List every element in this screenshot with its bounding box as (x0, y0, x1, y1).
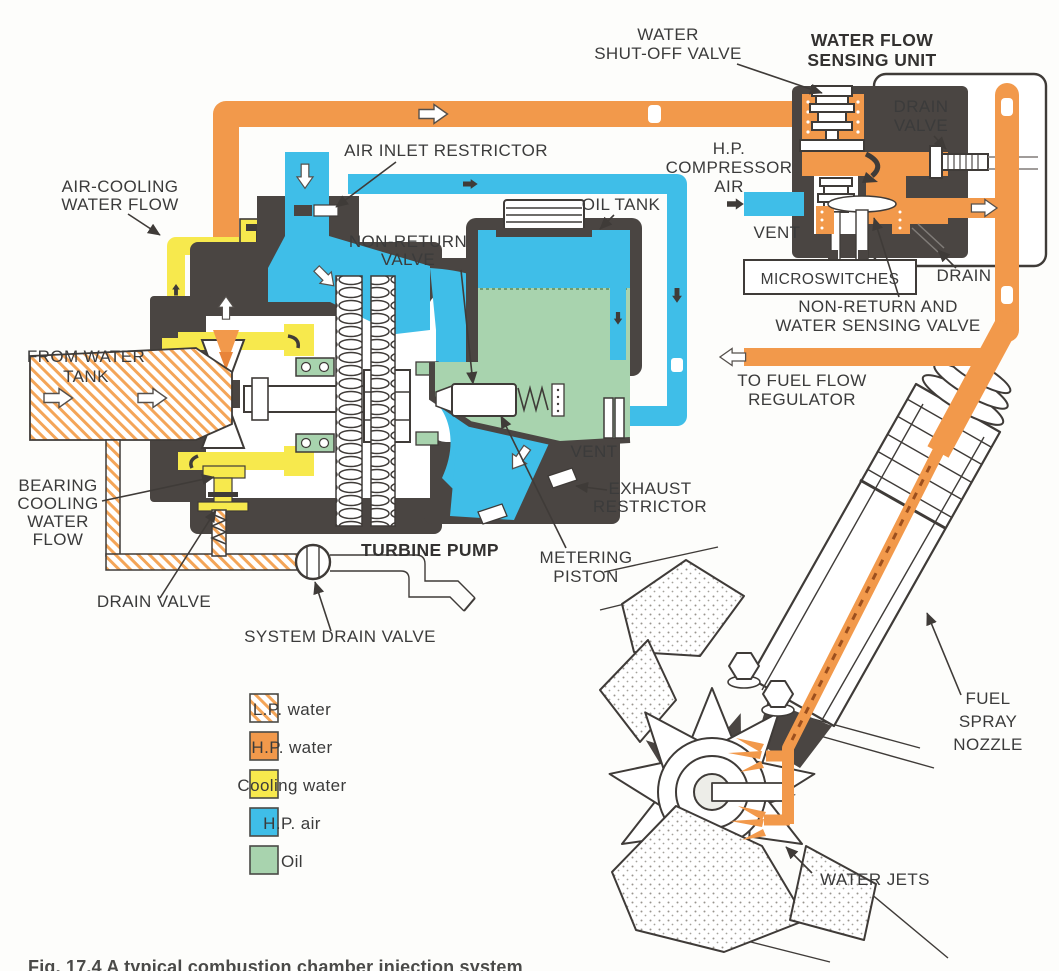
label-hp-compressor-air: COMPRESSOR (666, 158, 793, 177)
figure-caption: Fig. 17.4 A typical combustion chamber i… (28, 957, 523, 971)
label-water-shut-off-valve: SHUT-OFF VALVE (594, 44, 742, 63)
legend-item-oil: Oil (250, 846, 303, 874)
coil-stack-right (371, 276, 395, 526)
legend-label: Oil (281, 852, 303, 871)
label-vent-top: VENT (754, 223, 801, 242)
label-non-return-valve: NON-RETURN (349, 232, 467, 251)
legend-label: L.P. water (253, 700, 331, 719)
label-non-return-water-sensing-valve: WATER SENSING VALVE (775, 316, 980, 335)
label-air-inlet-restrictor: AIR INLET RESTRICTOR (344, 141, 548, 160)
label-hp-compressor-air: AIR (714, 177, 744, 196)
tank-standpipe (610, 240, 626, 360)
legend-swatch-oil (250, 846, 278, 874)
label-drain-valve-top: DRAIN (894, 97, 949, 116)
label-drain-valve-lower: DRAIN VALVE (97, 592, 211, 611)
label-metering-piston: METERING (540, 548, 633, 567)
label-to-fuel-flow-regulator: TO FUEL FLOW (737, 371, 866, 390)
label-hp-compressor-air: H.P. (713, 139, 745, 158)
label-microswitches: MICROSWITCHES (761, 271, 900, 288)
system-drain-outlet-pipe (330, 555, 475, 611)
burner-feed-tube (712, 783, 792, 801)
label-fuel-spray-nozzle: NOZZLE (953, 735, 1022, 754)
label-non-return-valve: VALVE (381, 250, 435, 269)
chamber-fin (622, 560, 744, 656)
label-oil-tank: OIL TANK (582, 195, 661, 214)
label-exhaust-restrictor: EXHAUST (608, 479, 691, 498)
legend: L.P. water H.P. water Cooling water H.P.… (237, 694, 346, 874)
label-water-jets: WATER JETS (820, 870, 930, 889)
chamber-fin (790, 846, 876, 940)
label-bearing-cooling-water-flow: WATER (27, 512, 89, 531)
label-drain-valve-top: VALVE (894, 116, 948, 135)
label-bearing-cooling-water-flow: BEARING (18, 476, 97, 495)
coil-stack-left (336, 276, 362, 526)
label-air-cooling-water-flow: WATER FLOW (61, 195, 178, 214)
label-turbine-pump: TURBINE PUMP (361, 540, 499, 560)
label-bearing-cooling-water-flow: COOLING (17, 494, 98, 513)
nozzle-barrel (750, 384, 1000, 726)
label-water-flow-sensing-unit: SENSING UNIT (807, 50, 936, 70)
oil-tank-oil (478, 288, 630, 370)
label-from-water-tank: TANK (63, 367, 109, 386)
legend-item-hp-air: H.P. air (250, 808, 321, 836)
label-fuel-spray-nozzle: SPRAY (959, 712, 1017, 731)
oil-tank-filler-cap (496, 200, 592, 237)
pipe-joint-mark (648, 105, 661, 123)
label-bearing-cooling-water-flow: FLOW (33, 530, 84, 549)
label-metering-piston: PISTON (553, 567, 618, 586)
pipe-joint-mark (1001, 286, 1013, 304)
legend-label: Cooling water (237, 776, 346, 795)
air-flow-arrow-icon (727, 198, 744, 209)
oil-tank-air-space (478, 230, 630, 288)
label-vent-lower: VENT (571, 442, 618, 461)
legend-item-hp-water: H.P. water (250, 732, 333, 760)
label-non-return-water-sensing-valve: NON-RETURN AND (798, 297, 958, 316)
flow-arrow-left-icon (720, 348, 746, 365)
pipe-joint-mark (671, 358, 683, 372)
label-air-cooling-water-flow: AIR-COOLING (62, 177, 179, 196)
label-to-fuel-flow-regulator: REGULATOR (748, 390, 856, 409)
legend-item-lp-water: L.P. water (250, 694, 331, 722)
legend-label: H.P. water (251, 738, 332, 757)
label-water-flow-sensing-unit: WATER FLOW (811, 30, 933, 50)
label-exhaust-restrictor: RESTRICTOR (593, 497, 707, 516)
legend-item-cooling-water: Cooling water (237, 770, 346, 798)
legend-label: H.P. air (263, 814, 321, 833)
label-drain: DRAIN (937, 266, 992, 285)
label-fuel-spray-nozzle: FUEL (965, 689, 1010, 708)
pipe-joint-mark (1001, 98, 1013, 116)
label-from-water-tank: FROM WATER (27, 347, 145, 366)
injection-system-diagram: L.P. water H.P. water Cooling water H.P.… (0, 0, 1059, 971)
diagram-page: L.P. water H.P. water Cooling water H.P.… (0, 0, 1059, 971)
air-inlet-restrictor-part (294, 205, 354, 216)
label-system-drain-valve: SYSTEM DRAIN VALVE (244, 627, 436, 646)
system-drain-valve-part (296, 545, 330, 579)
label-water-shut-off-valve: WATER (637, 25, 699, 44)
